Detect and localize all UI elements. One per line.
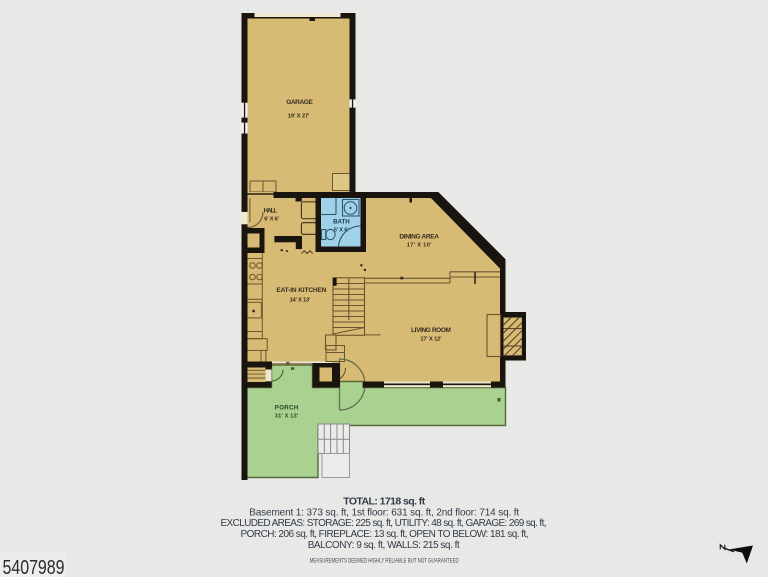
svg-text:6' X 6': 6' X 6'	[264, 217, 279, 223]
svg-text:BALCONY: 9 sq. ft, WALLS: 215: BALCONY: 9 sq. ft, WALLS: 215 sq. ft	[308, 540, 460, 551]
svg-text:EAT-IN KITCHEN: EAT-IN KITCHEN	[276, 287, 326, 294]
svg-text:Basement 1: 373 sq. ft, 1st fl: Basement 1: 373 sq. ft, 1st floor: 631 s…	[249, 508, 519, 519]
svg-text:LIVING ROOM: LIVING ROOM	[411, 327, 451, 334]
svg-text:GARAGE: GARAGE	[286, 99, 313, 106]
svg-text:PORCH: PORCH	[275, 405, 299, 412]
svg-text:5407989: 5407989	[3, 557, 65, 577]
svg-text:EXCLUDED AREAS: STORAGE: 225 s: EXCLUDED AREAS: STORAGE: 225 sq. ft, UTI…	[221, 518, 547, 529]
svg-text:5' X 6': 5' X 6'	[334, 227, 350, 233]
svg-text:19' X 27': 19' X 27'	[288, 114, 310, 120]
svg-text:DINING AREA: DINING AREA	[399, 234, 439, 241]
svg-text:31' X 13': 31' X 13'	[275, 414, 299, 420]
svg-text:17' X 10': 17' X 10'	[407, 243, 432, 249]
svg-text:PORCH: 206 sq. ft, FIREPLACE:: PORCH: 206 sq. ft, FIREPLACE: 13 sq. ft,…	[241, 529, 529, 540]
svg-text:17' X 12': 17' X 12'	[420, 337, 442, 343]
svg-text:HALL: HALL	[264, 207, 278, 214]
svg-text:MEASUREMENTS DEEMED HIGHLY REL: MEASUREMENTS DEEMED HIGHLY RELIABLE BUT …	[310, 558, 459, 565]
svg-text:TOTAL: 1718 sq. ft: TOTAL: 1718 sq. ft	[343, 496, 426, 508]
svg-text:14' X 13': 14' X 13'	[290, 298, 311, 304]
svg-text:BATH: BATH	[333, 218, 350, 225]
